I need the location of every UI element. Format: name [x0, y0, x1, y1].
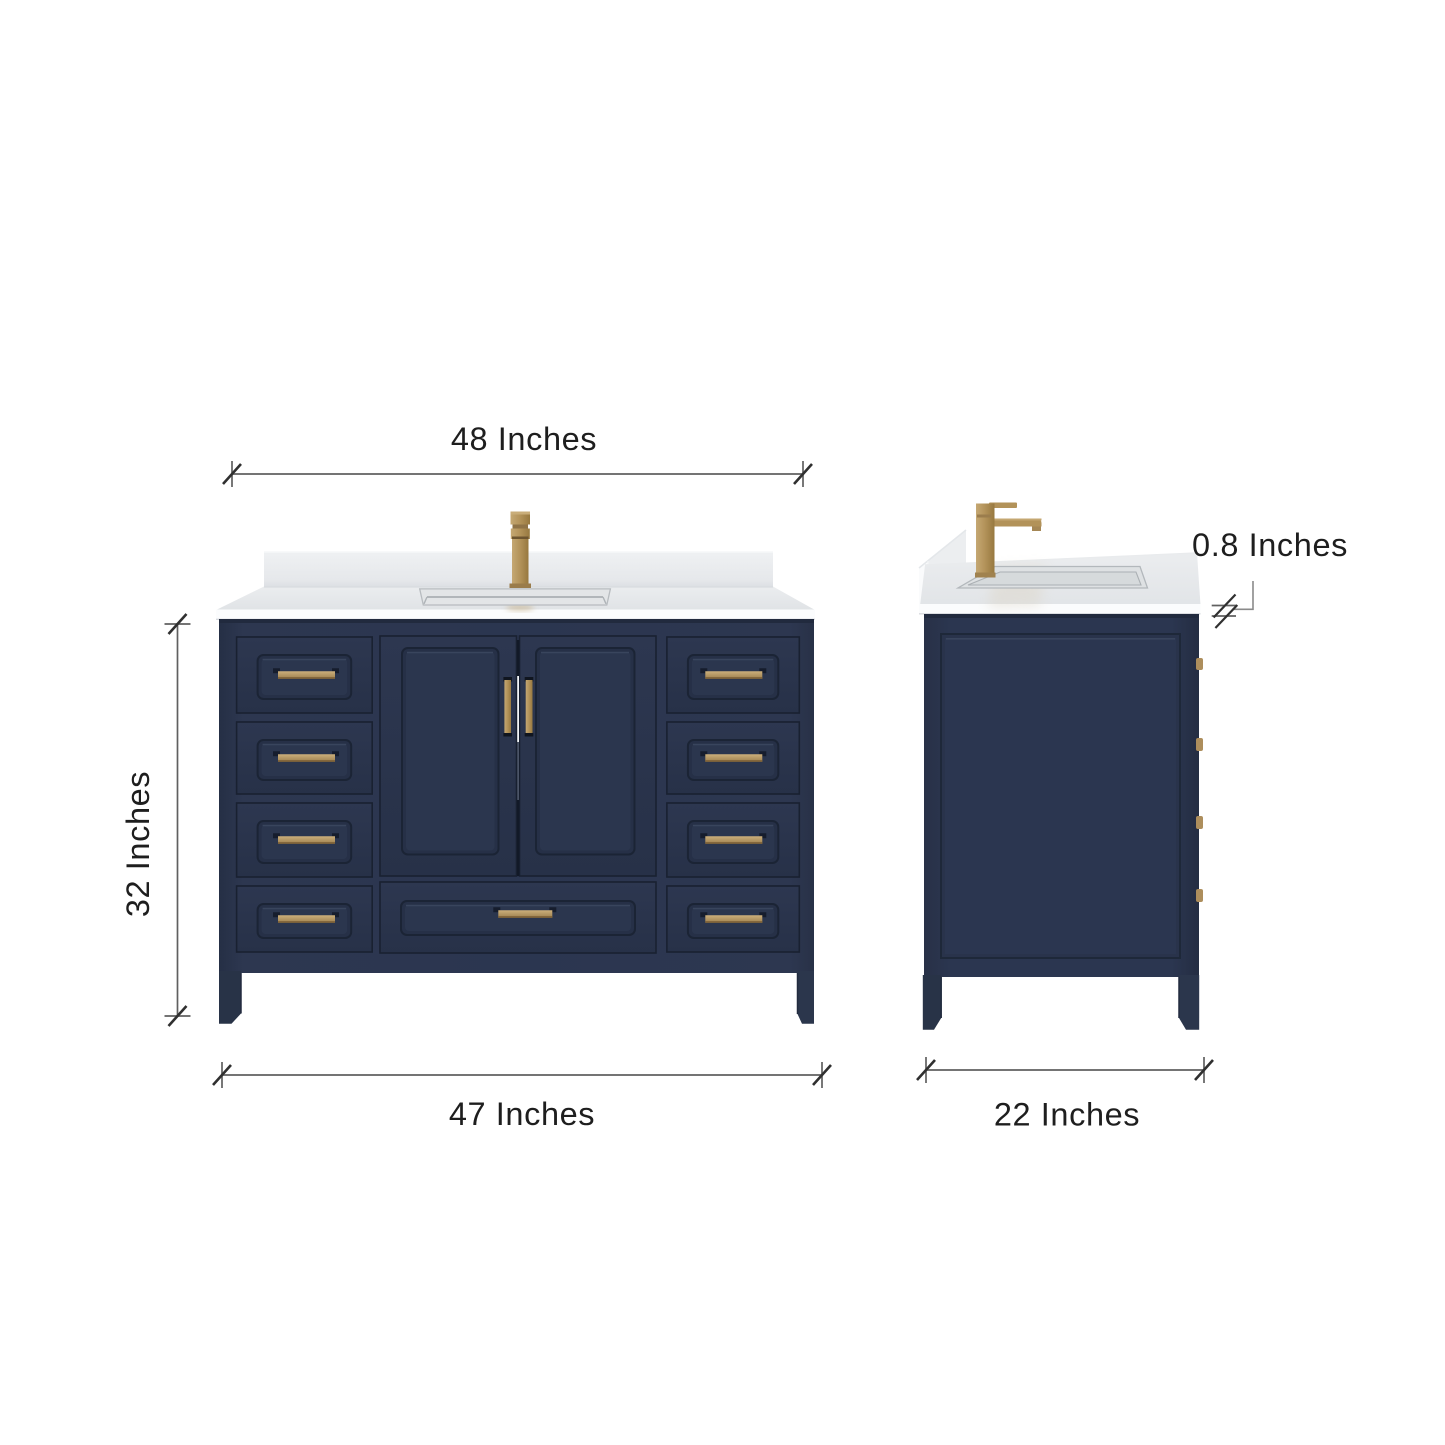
- svg-text:22 Inches: 22 Inches: [994, 1097, 1140, 1133]
- svg-text:32 Inches: 32 Inches: [120, 771, 156, 917]
- svg-text:47 Inches: 47 Inches: [449, 1096, 595, 1132]
- svg-text:48 Inches: 48 Inches: [451, 421, 597, 457]
- svg-text:0.8 Inches: 0.8 Inches: [1192, 527, 1348, 563]
